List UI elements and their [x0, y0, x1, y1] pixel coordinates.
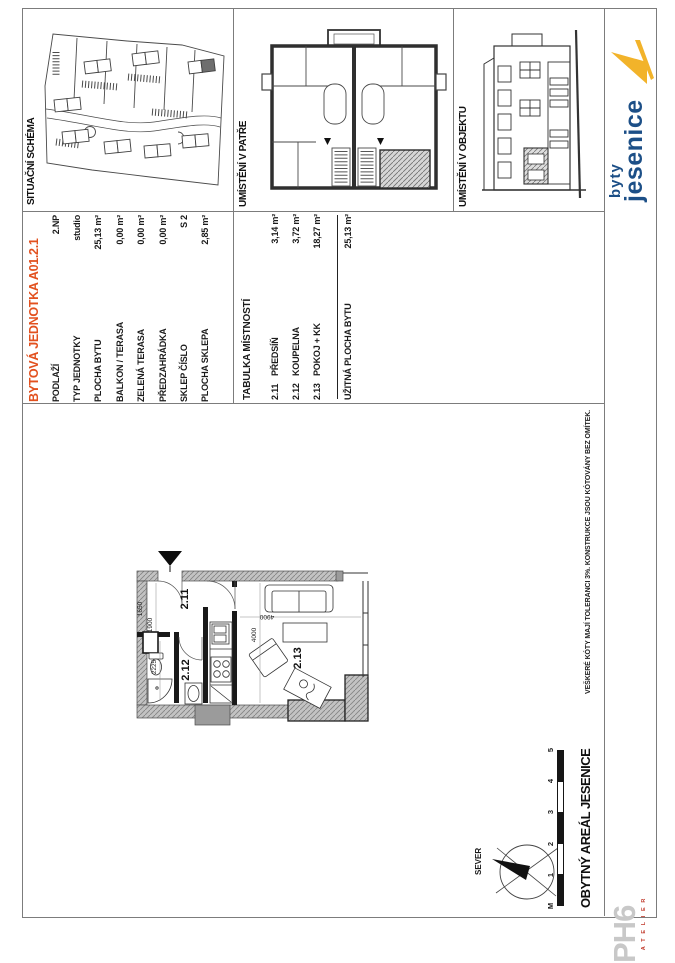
property-label: PLOCHA BYTU [93, 340, 103, 402]
dim-1650: 1650 [137, 601, 144, 616]
room-name: POKOJ + KK [312, 323, 322, 376]
unit-property-row: BALKON / TERASA 0,00 m² [109, 215, 130, 402]
unit-property-row: TYP JEDNOTKY studio [66, 215, 87, 402]
room-table-title: TABULKA MÍSTNOSTÍ [242, 214, 258, 400]
property-label: TYP JEDNOTKY [72, 336, 82, 402]
room-row: 2.13 POKOJ + KK 18,27 m² [306, 214, 327, 400]
unit-data-section: BYTOVÁ JEDNOTKA A01.2.1 PODLAŽÍ 2.NP TYP… [25, 212, 231, 402]
property-value: 0,00 m² [158, 215, 168, 245]
room-label-2-12: 2.12 [180, 659, 192, 680]
unit-property-row: PODLAŽÍ 2.NP [45, 215, 66, 402]
dim-4000: 4000 [251, 627, 258, 642]
property-value: studio [72, 215, 82, 241]
room-label-2-13: 2.13 [292, 647, 304, 668]
property-value: 0,00 m² [136, 215, 146, 245]
logo-arrow-icon [607, 38, 655, 90]
total-label: UŽITNÁ PLOCHA BYTU [343, 303, 353, 400]
room-table-total-row: UŽITNÁ PLOCHA BYTU 25,13 m² [338, 214, 358, 400]
room-area: 18,27 m² [312, 214, 322, 248]
floor-location-drawing [258, 22, 450, 204]
room-number: 2.12 [291, 376, 301, 400]
unit-property-row: PLOCHA BYTU 25,13 m² [88, 215, 109, 402]
unit-property-list: PODLAŽÍ 2.NP TYP JEDNOTKY studio PLOCHA … [45, 212, 216, 402]
property-label: PODLAŽÍ [51, 364, 61, 402]
room-row: 2.12 KOUPELNA 3,72 m² [285, 214, 306, 400]
divider-h-data-band [22, 403, 605, 404]
entrance-arrow-icon [158, 551, 182, 566]
unit-title: BYTOVÁ JEDNOTKA A01.2.1 [27, 212, 45, 402]
apartment-floor-plan: 1650 1900 2225 4000 4900 2.11 2.12 2.13 [125, 545, 390, 740]
divider-v-situace [233, 8, 234, 404]
north-label: SEVER [474, 845, 485, 875]
room-number: 2.11 [270, 376, 280, 400]
tolerance-disclaimer: VEŠKERÉ KÓTY MAJÍ TOLERANCI 3%. KONSTRUK… [585, 402, 598, 694]
property-value: 2.NP [51, 215, 61, 234]
room-row: 2.11 PŘEDSÍŇ 3,14 m² [264, 214, 285, 400]
room-area: 3,72 m² [291, 214, 301, 244]
unit-property-row: ZELENÁ TERASA 0,00 m² [131, 215, 152, 402]
property-label: BALKON / TERASA [115, 322, 125, 402]
property-value: 2,85 m² [200, 215, 210, 245]
unit-property-row: PLOCHA SKLEPA 2,85 m² [195, 215, 216, 402]
apartment-datasheet: { "panels": { "situace": { "label": "SIT… [0, 0, 675, 955]
byty-jesenice-logo: byty jesenice [607, 12, 655, 208]
property-label: ZELENÁ TERASA [136, 329, 146, 402]
dim-4900: 4900 [259, 613, 274, 620]
north-needle-icon [492, 859, 530, 880]
site-plan-drawing [32, 14, 230, 206]
scale-label-2: 2 [546, 839, 555, 849]
property-label: PLOCHA SKLEPA [200, 329, 210, 402]
unit-property-row: SKLEP ČÍSLO S 2 [173, 215, 194, 402]
room-name: PŘEDSÍŇ [270, 337, 280, 376]
scale-label-3: 3 [546, 807, 555, 817]
room-name: KOUPELNA [291, 327, 301, 376]
property-label: SKLEP ČÍSLO [179, 344, 189, 402]
unit-property-row: PŘEDZAHRÁDKA 0,00 m² [152, 215, 173, 402]
scale-label-m: M [546, 901, 555, 911]
divider-v-logo-column [604, 8, 605, 916]
ph6-wordmark: PH6 [607, 897, 643, 963]
room-number: 2.13 [312, 376, 322, 400]
property-value: 0,00 m² [115, 215, 125, 245]
room-label-2-11: 2.11 [179, 589, 191, 610]
dim-1900: 1900 [147, 617, 154, 632]
property-value: S 2 [179, 215, 189, 228]
project-title: OBYTNÝ AREÁL JESENICE [578, 741, 602, 908]
building-location-drawing [474, 22, 596, 204]
scale-label-1: 1 [546, 870, 555, 880]
logo-word-jesenice: jesenice [620, 99, 649, 202]
panel-label-floor-location: UMÍSTĚNÍ V PATŘE [238, 93, 260, 207]
scale-bar: M 1 2 3 4 5 [546, 744, 569, 908]
ph6-atelier-logo: PH6 A T E L I E R [607, 897, 655, 963]
total-value: 25,13 m² [343, 214, 353, 248]
dim-2225: 2225 [151, 659, 158, 674]
room-table-section: TABULKA MÍSTNOSTÍ 2.11 PŘEDSÍŇ 3,14 m² 2… [236, 212, 436, 402]
scale-label-4: 4 [546, 776, 555, 786]
scale-label-5: 5 [546, 745, 555, 755]
property-label: PŘEDZAHRÁDKA [158, 328, 168, 402]
property-value: 25,13 m² [93, 215, 103, 249]
room-area: 3,14 m² [270, 214, 280, 244]
scale-bar-segments [557, 750, 564, 906]
divider-v-patro [453, 8, 454, 211]
